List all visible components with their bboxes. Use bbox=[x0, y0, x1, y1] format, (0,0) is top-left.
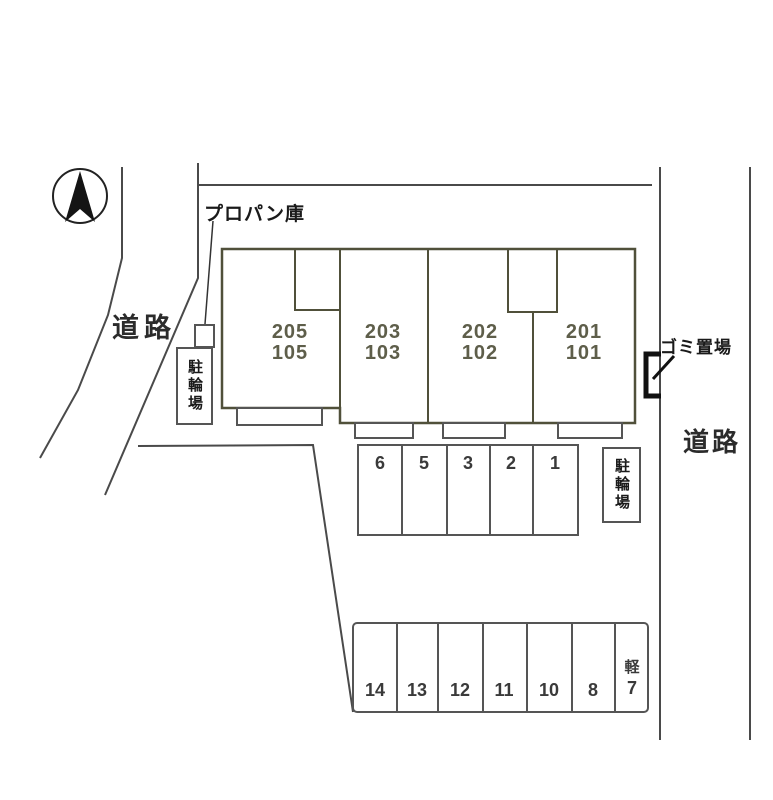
propane-storage-label: プロパン庫 bbox=[204, 199, 305, 226]
garbage-leader-line bbox=[653, 356, 674, 379]
parking-space-12: 12 bbox=[450, 680, 470, 701]
porch-unit-101 bbox=[558, 423, 622, 438]
parking-space-2: 2 bbox=[506, 453, 516, 474]
road-right-label: 道路 bbox=[683, 422, 741, 459]
parking-space-8: 8 bbox=[588, 680, 598, 701]
parking-space-1: 1 bbox=[550, 453, 560, 474]
porch-unit-105 bbox=[237, 408, 322, 425]
parking-space-5: 5 bbox=[419, 453, 429, 474]
porch-unit-103 bbox=[355, 423, 413, 438]
site-plan: プロパン庫 道路 道路 ゴミ置場 駐輪場 駐輪場 205 105 203 103… bbox=[0, 0, 773, 800]
garbage-area-label: ゴミ置場 bbox=[660, 333, 732, 358]
unit-label-205-105: 205 105 bbox=[272, 322, 308, 364]
unit-label-203-103: 203 103 bbox=[365, 322, 401, 364]
parking-space-13: 13 bbox=[407, 680, 427, 701]
unit-label-202-102: 202 102 bbox=[462, 322, 498, 364]
stairwell-notch-1 bbox=[295, 249, 340, 310]
parking-space-10: 10 bbox=[539, 680, 559, 701]
bicycle-parking-left-label: 駐輪場 bbox=[177, 350, 212, 422]
porch-unit-102 bbox=[443, 423, 505, 438]
bicycle-parking-right-label: 駐輪場 bbox=[603, 450, 640, 520]
road-left-label: 道路 bbox=[112, 306, 176, 345]
parking-space-3: 3 bbox=[463, 453, 473, 474]
parking-space-6: 6 bbox=[375, 453, 385, 474]
compass-icon bbox=[53, 169, 107, 223]
property-boundary-bottom-left bbox=[138, 445, 353, 712]
parking-space-14: 14 bbox=[365, 680, 385, 701]
site-plan-drawing bbox=[0, 0, 773, 800]
parking-space-kei-7: 軽 7 bbox=[624, 658, 639, 698]
parking-space-11: 11 bbox=[494, 680, 513, 701]
propane-box bbox=[195, 325, 214, 347]
propane-leader-line bbox=[205, 221, 213, 324]
unit-label-201-101: 201 101 bbox=[566, 322, 602, 364]
stairwell-notch-2 bbox=[508, 249, 557, 312]
garbage-enclosure-icon bbox=[646, 354, 661, 396]
